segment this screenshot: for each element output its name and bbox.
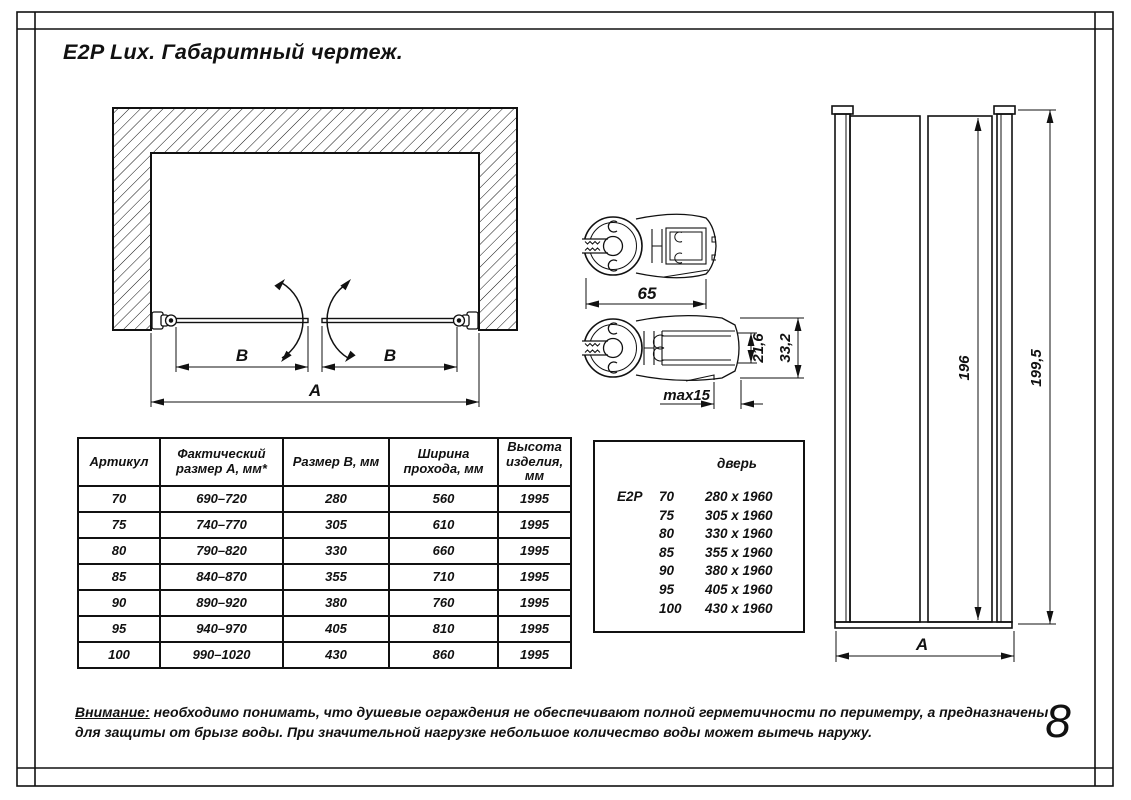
dim-label-199-5: 199,5 [1028,349,1045,387]
dim-label-b-left: B [236,346,248,365]
table-row: 100 990–1020 430 860 1995 [78,642,571,668]
col-header-pass-width: Ширина прохода, мм [389,438,498,486]
wall-hatched [113,108,517,330]
door-sizes-box: дверь E2P 70 280 x 1960 75 305 x 1960 80… [593,440,805,633]
profile-section-top: 65 [582,214,716,309]
series-label: E2P [617,488,659,507]
technical-drawing-svg: B B A [0,0,1131,800]
front-dimensions [836,110,1056,662]
warning-line-1: Внимание: необходимо понимать, что душев… [75,702,1048,722]
list-item: 75 305 x 1960 [595,507,803,526]
warning-label: Внимание: [75,704,150,720]
col-header-height: Высота изделия, мм [498,438,571,486]
list-item: 100 430 x 1960 [595,600,803,619]
table-header-row: Артикул Фактический размер А, мм* Размер… [78,438,571,486]
dim-label-b-right: B [384,346,396,365]
dim-label-a-plan: A [308,381,321,400]
table-row: 95 940–970 405 810 1995 [78,616,571,642]
profile-cap-right [994,106,1015,114]
table-row: 90 890–920 380 760 1995 [78,590,571,616]
dim-label-196: 196 [956,355,973,381]
wall-profile-left [835,114,850,622]
warning-line-2: для защиты от брызг воды. При значительн… [75,722,1048,742]
dim-label-max15: max15 [663,387,710,404]
hinge-right [454,312,479,329]
glass-panel-left [850,116,920,622]
door-glass-right [322,319,457,323]
table-row: 80 790–820 330 660 1995 [78,538,571,564]
door-glass-left [176,319,308,323]
warning-note: Внимание: необходимо понимать, что душев… [75,702,1048,742]
front-view: 196 199,5 A [832,106,1056,662]
drawing-sheet: B B A [0,0,1131,800]
profile-section-side: 21,6 33,2 max15 [582,316,804,409]
col-header-size-b: Размер В, мм [283,438,389,486]
dim-label-a-front: A [915,635,928,654]
col-header-article: Артикул [78,438,160,486]
door-box-rows: E2P 70 280 x 1960 75 305 x 1960 80 330 x… [595,488,803,618]
door-box-header: дверь [717,456,803,471]
table-row: 85 840–870 355 710 1995 [78,564,571,590]
list-item: 95 405 x 1960 [595,581,803,600]
page-number: 8 [1028,694,1088,748]
bottom-rail [835,622,1012,628]
list-item: 80 330 x 1960 [595,525,803,544]
plan-view: B B A [113,108,517,407]
dim-label-33-2: 33,2 [777,333,794,363]
wall-profile-right [997,114,1012,622]
table-row: 75 740–770 305 610 1995 [78,512,571,538]
page-title: E2P Lux. Габаритный чертеж. [63,40,403,65]
profile-cap-left [832,106,853,114]
size-table: Артикул Фактический размер А, мм* Размер… [77,437,572,669]
list-item: 90 380 x 1960 [595,562,803,581]
hinge-left [152,312,177,329]
list-item: E2P 70 280 x 1960 [595,488,803,507]
table-row: 70 690–720 280 560 1995 [78,486,571,512]
list-item: 85 355 x 1960 [595,544,803,563]
dim-label-21-6: 21,6 [750,333,767,364]
col-header-size-a: Фактический размер А, мм* [160,438,283,486]
dim-label-65: 65 [638,284,657,303]
